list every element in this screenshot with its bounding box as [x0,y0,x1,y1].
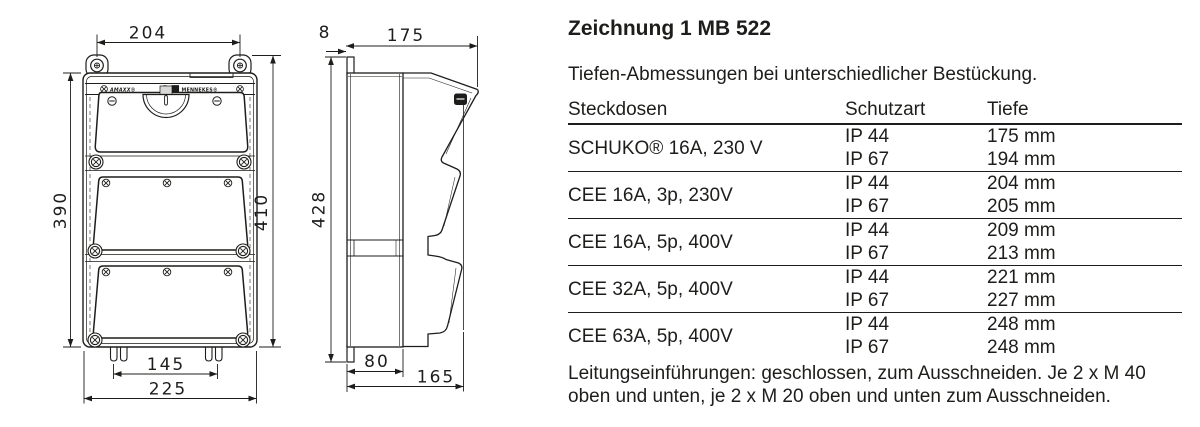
front-zigzag-profile [403,90,478,347]
col-header-tiefe: Tiefe [987,99,1182,124]
table-row: CEE 16A, 5p, 400V IP 44 209 mm [568,219,1182,243]
table-row: SCHUKO® 16A, 230 V IP 44 175 mm [568,124,1182,148]
svg-text:145: 145 [147,355,185,375]
col-header-schutzart: Schutzart [845,99,987,124]
tiefe-cell: 175 mm [987,124,1182,148]
footer-line-1: Leitungseinführungen: geschlossen, zum A… [568,363,1146,386]
schutzart-cell: IP 44 [845,313,987,337]
tiefe-cell: 194 mm [987,148,1182,172]
intro-text: Tiefen-Abmessungen bei unterschiedlicher… [568,64,1037,86]
dim-bottom-inner: 145 [114,355,218,379]
table-group: SCHUKO® 16A, 230 V IP 44 175 mm IP 67 19… [568,124,1182,172]
col-header-steckdosen: Steckdosen [568,99,845,124]
dim-total-height: 428 [310,57,347,362]
flange-tab-top [347,57,354,74]
table-group: CEE 63A, 5p, 400V IP 44 248 mm IP 67 248… [568,313,1182,360]
schutzart-cell: IP 67 [845,289,987,313]
footer-note: Leitungseinführungen: geschlossen, zum A… [568,363,1146,408]
tiefe-cell: 204 mm [987,172,1182,196]
steckdose-cell: CEE 16A, 5p, 400V [568,219,845,266]
dim-top-width: 204 [97,24,240,58]
tiefe-cell: 248 mm [987,336,1182,359]
schutzart-cell: IP 67 [845,148,987,172]
table-group: CEE 32A, 5p, 400V IP 44 221 mm IP 67 227… [568,266,1182,313]
table-group: CEE 16A, 5p, 400V IP 44 209 mm IP 67 213… [568,219,1182,266]
catalog-page: AMAXX® MENNEKES® [0,0,1200,427]
svg-text:80: 80 [364,352,390,372]
svg-text:165: 165 [417,368,455,388]
rear-box [347,73,403,347]
dim-height-left: 390 [51,73,81,347]
table-group: CEE 16A, 3p, 230V IP 44 204 mm IP 67 205… [568,172,1182,219]
svg-text:225: 225 [149,380,187,400]
socket-panel-3 [93,266,247,338]
schutzart-cell: IP 44 [845,172,987,196]
tiefe-cell: 227 mm [987,289,1182,313]
depth-table: Steckdosen Schutzart Tiefe SCHUKO® 16A, … [568,99,1182,359]
schutzart-cell: IP 44 [845,219,987,243]
table-row: CEE 16A, 3p, 230V IP 44 204 mm [568,172,1182,196]
schutzart-cell: IP 67 [845,336,987,359]
dim-flange-thickness: 8 [319,23,346,52]
tiefe-cell: 248 mm [987,313,1182,337]
svg-text:428: 428 [310,190,330,228]
page-title: Zeichnung 1 MB 522 [568,17,771,41]
steckdose-cell: CEE 16A, 3p, 230V [568,172,845,219]
steckdose-cell: SCHUKO® 16A, 230 V [568,124,845,172]
table-row: CEE 63A, 5p, 400V IP 44 248 mm [568,313,1182,337]
svg-text:175: 175 [387,26,425,46]
tiefe-cell: 205 mm [987,195,1182,219]
tiefe-cell: 209 mm [987,219,1182,243]
schutzart-cell: IP 67 [845,195,987,219]
table-row: CEE 32A, 5p, 400V IP 44 221 mm [568,266,1182,290]
schutzart-cell: IP 44 [845,124,987,148]
steckdose-cell: CEE 32A, 5p, 400V [568,266,845,313]
side-view-drawing: 8 175 428 80 165 [298,15,496,407]
svg-text:204: 204 [129,24,167,44]
footer-line-2: oben und unten, je 2 x M 20 oben und unt… [568,386,1146,409]
tiefe-cell: 221 mm [987,266,1182,290]
flange-tab-bottom [347,346,354,362]
top-cover [403,73,478,90]
steckdose-cell: CEE 63A, 5p, 400V [568,313,845,360]
table-header-row: Steckdosen Schutzart Tiefe [568,99,1182,124]
svg-text:410: 410 [252,193,272,231]
front-view-drawing: AMAXX® MENNEKES® [50,12,290,412]
schutzart-cell: IP 44 [845,266,987,290]
dim-body-depth: 80 [347,349,403,392]
schutzart-cell: IP 67 [845,242,987,266]
tiefe-cell: 213 mm [987,242,1182,266]
svg-text:390: 390 [51,191,71,229]
mennekes-logo-icon [172,86,179,93]
svg-text:8: 8 [319,23,332,43]
socket-panel-2 [93,177,247,250]
